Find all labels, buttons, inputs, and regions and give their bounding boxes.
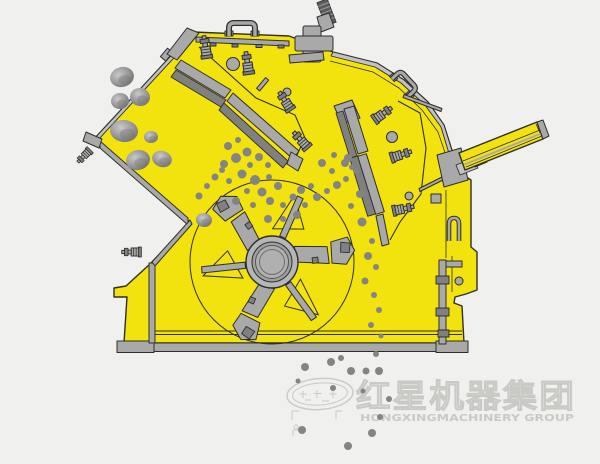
particle bbox=[324, 188, 330, 194]
particle bbox=[296, 379, 301, 384]
left-wall-seam bbox=[149, 263, 155, 343]
particle bbox=[349, 164, 355, 170]
foot-left bbox=[117, 341, 154, 353]
particle bbox=[231, 153, 241, 163]
particle bbox=[293, 211, 301, 219]
particle bbox=[274, 182, 282, 190]
particle bbox=[238, 170, 247, 179]
rock-shade bbox=[159, 157, 170, 165]
particle bbox=[363, 368, 370, 375]
particle bbox=[297, 186, 305, 194]
particle bbox=[290, 194, 297, 201]
rotor-hub bbox=[246, 236, 298, 288]
particle bbox=[204, 183, 210, 189]
particle bbox=[375, 367, 383, 375]
particle bbox=[368, 322, 374, 328]
rock-shade bbox=[134, 158, 147, 168]
tie-rod-anchor bbox=[431, 194, 441, 203]
frame-hole bbox=[227, 58, 240, 71]
particle bbox=[212, 174, 219, 181]
rock-shade bbox=[137, 95, 148, 104]
particle bbox=[369, 238, 375, 244]
particle bbox=[329, 168, 335, 174]
diagram-stage: 红星机器集团 HONGXINGMACHINERY GROUP bbox=[0, 0, 600, 464]
particle bbox=[347, 367, 355, 375]
particle bbox=[220, 160, 228, 168]
particle bbox=[344, 154, 352, 162]
particle bbox=[235, 137, 241, 143]
rock-shade bbox=[202, 219, 211, 226]
particle bbox=[373, 264, 379, 270]
particle bbox=[376, 307, 382, 313]
particle bbox=[301, 363, 309, 371]
particle bbox=[379, 334, 384, 339]
particle bbox=[258, 188, 267, 197]
frame-hole bbox=[405, 192, 413, 200]
particle bbox=[364, 252, 372, 260]
particle bbox=[232, 197, 240, 205]
crusher-diagram: 红星机器集团 HONGXINGMACHINERY GROUP bbox=[0, 0, 600, 464]
particle bbox=[280, 216, 286, 222]
particle bbox=[280, 202, 286, 208]
particle bbox=[250, 175, 260, 185]
particle bbox=[333, 181, 341, 189]
particle bbox=[298, 426, 306, 434]
particle bbox=[368, 429, 376, 437]
particle bbox=[224, 142, 232, 150]
rock-shade bbox=[120, 129, 135, 140]
particle bbox=[330, 385, 336, 391]
particle bbox=[264, 215, 272, 223]
rock-shade bbox=[149, 136, 157, 142]
particle bbox=[338, 355, 344, 361]
particle bbox=[265, 162, 271, 168]
particle bbox=[318, 159, 326, 167]
particle bbox=[250, 202, 256, 208]
particle bbox=[266, 197, 274, 205]
particle bbox=[358, 218, 367, 227]
particle bbox=[386, 396, 392, 402]
particle bbox=[343, 176, 349, 182]
particle bbox=[377, 414, 383, 420]
base-rail bbox=[146, 343, 450, 352]
wall-hole bbox=[455, 277, 463, 285]
particle bbox=[356, 190, 364, 198]
particle bbox=[302, 202, 308, 208]
particle bbox=[196, 193, 203, 200]
particle bbox=[331, 152, 337, 158]
frame-hole bbox=[387, 132, 398, 143]
particle bbox=[247, 162, 253, 168]
particle bbox=[361, 389, 366, 394]
company-name-en: HONGXINGMACHINERY GROUP bbox=[360, 413, 574, 424]
particle bbox=[243, 148, 252, 157]
particle bbox=[327, 358, 335, 366]
particle bbox=[266, 174, 272, 180]
particle bbox=[344, 442, 352, 450]
particle bbox=[313, 193, 321, 201]
particle bbox=[373, 351, 379, 357]
rock-shade bbox=[117, 99, 127, 107]
particle bbox=[348, 203, 354, 209]
particle bbox=[255, 153, 263, 161]
particle bbox=[226, 178, 232, 184]
particle bbox=[308, 183, 314, 189]
lower-lip-bolt bbox=[122, 247, 142, 257]
particle bbox=[362, 278, 369, 285]
particle bbox=[244, 188, 250, 194]
particle bbox=[371, 292, 377, 298]
rock-shade bbox=[118, 75, 131, 85]
